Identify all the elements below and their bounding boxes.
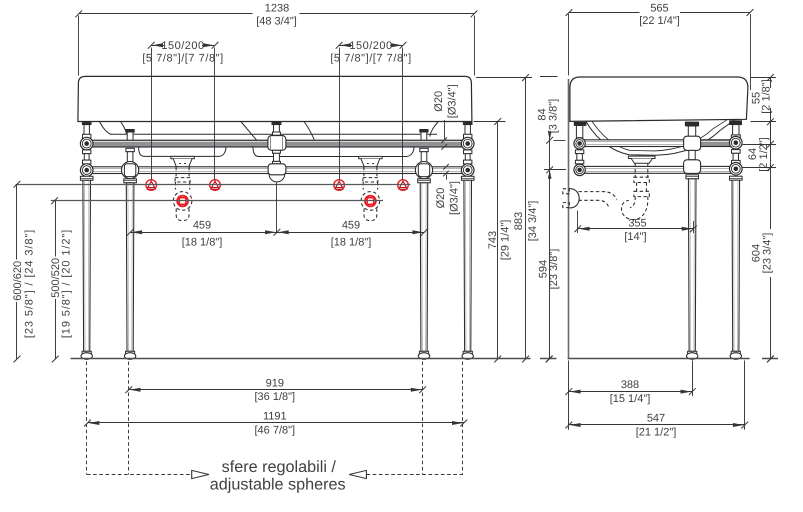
svg-text:1238: 1238 xyxy=(265,3,289,15)
svg-text:[18 1/8"]: [18 1/8"] xyxy=(182,236,223,248)
svg-text:743: 743 xyxy=(487,231,499,249)
svg-text:[23 3/8"]: [23 3/8"] xyxy=(548,249,560,290)
svg-text:[21 1/2"]: [21 1/2"] xyxy=(636,426,677,438)
svg-text:Ø20: Ø20 xyxy=(433,91,445,112)
svg-text:[48 3/4"]: [48 3/4"] xyxy=(256,15,297,27)
svg-text:883: 883 xyxy=(513,212,525,230)
svg-text:[22 1/4"]: [22 1/4"] xyxy=(639,15,680,27)
svg-text:919: 919 xyxy=(266,377,284,389)
svg-text:[2 1/2"]: [2 1/2"] xyxy=(758,137,770,171)
svg-text:[34 3/4"]: [34 3/4"] xyxy=(527,201,539,242)
svg-text:[23 3/4"]: [23 3/4"] xyxy=(761,233,773,274)
svg-text:388: 388 xyxy=(621,379,639,391)
svg-text:[15 1/4"]: [15 1/4"] xyxy=(610,393,651,405)
svg-text:150/200: 150/200 xyxy=(349,40,392,52)
svg-text:[5 7/8"]/[7 7/8"]: [5 7/8"]/[7 7/8"] xyxy=(142,52,223,64)
svg-text:[23 5/8"] / [24 3/8"]: [23 5/8"] / [24 3/8"] xyxy=(23,229,35,338)
svg-text:Ø20: Ø20 xyxy=(435,188,447,209)
svg-text:355: 355 xyxy=(628,218,646,230)
svg-text:547: 547 xyxy=(647,413,665,425)
svg-text:[5 7/8"]/[7 7/8"]: [5 7/8"]/[7 7/8"] xyxy=(330,52,411,64)
svg-text:459: 459 xyxy=(342,219,360,231)
svg-text:[14"]: [14"] xyxy=(624,231,646,243)
svg-text:[46 7/8"]: [46 7/8"] xyxy=(254,424,295,436)
svg-text:565: 565 xyxy=(650,3,668,15)
svg-text:[29 1/4"]: [29 1/4"] xyxy=(499,220,511,261)
svg-text:1191: 1191 xyxy=(263,411,287,423)
svg-text:[19 5/8"] / [20 1/2"]: [19 5/8"] / [20 1/2"] xyxy=(60,229,72,338)
svg-text:150/200: 150/200 xyxy=(161,40,204,52)
svg-text:[3 3/8"]: [3 3/8"] xyxy=(547,99,559,133)
svg-text:[18 1/8"]: [18 1/8"] xyxy=(331,236,372,248)
svg-text:459: 459 xyxy=(193,219,211,231)
svg-text:[Ø3/4"]: [Ø3/4"] xyxy=(447,84,459,118)
svg-text:[Ø3/4"]: [Ø3/4"] xyxy=(448,181,460,215)
svg-text:adjustable spheres: adjustable spheres xyxy=(210,476,346,494)
svg-text:[36 1/8"]: [36 1/8"] xyxy=(254,391,295,403)
svg-text:600/620: 600/620 xyxy=(12,261,24,301)
svg-text:sfere regolabili /: sfere regolabili / xyxy=(222,458,337,476)
